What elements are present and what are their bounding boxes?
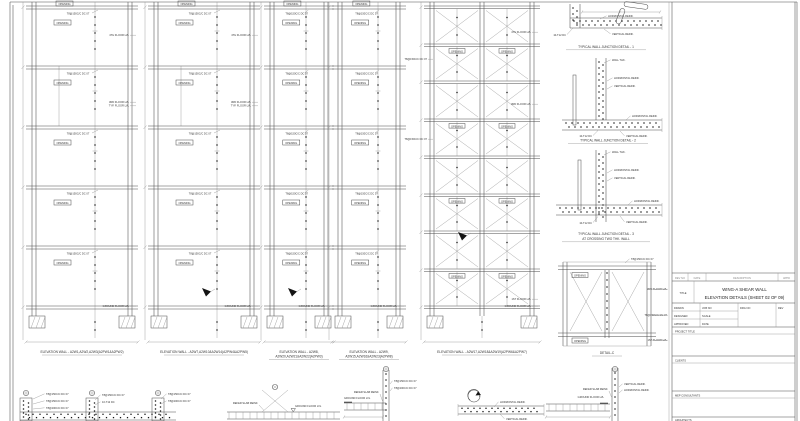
detail-caption: DETAIL-C xyxy=(600,351,615,355)
rebar-label: T8@150C/C DC 07 xyxy=(355,12,378,16)
rebar-label: T8@150C/C DC 07 xyxy=(404,57,427,61)
rebar-label: T8@150C/C DC 07 xyxy=(285,132,308,136)
elevation-caption: ELEVATION WALL - A2W7,A2W10&A2W14(A2PW4&… xyxy=(160,350,248,354)
elevation-3: OPENINGT8@150C/C DC 07OPENINGT8@150C/C D… xyxy=(260,1,336,360)
panel-tag: OPENING xyxy=(285,261,297,265)
scale-label: SCALE xyxy=(702,314,711,318)
annotation-label: T8@150C/C DC 07 xyxy=(394,379,417,383)
bottom-detail-2: REFER SLAB REINF.GROUND FLOOR LVL xyxy=(227,384,340,419)
annotation-label: HORIZONTAL REINF. xyxy=(500,400,526,404)
rebar-label: T8@150C/C DC 07 xyxy=(285,252,308,256)
annotation-label: HORIZONTAL REINF. xyxy=(608,14,634,18)
rebar-label: T8@150C/C DC 07 xyxy=(285,192,308,196)
rebar-label: T8@150C/C DC 07 xyxy=(189,192,212,196)
annotation-label: REFER SLAB REINF. xyxy=(354,390,379,394)
section-markers xyxy=(202,232,471,297)
elevation-4: OPENINGT8@150C/C DC 07OPENINGT8@150C/C D… xyxy=(328,1,408,360)
panel-tag: OPENING xyxy=(501,124,513,128)
bottom-detail-1: T8@150C/C DC 07T8@150C/C DC 07T8@200C/C … xyxy=(20,390,191,421)
annotation-label: VERTICAL REINF. xyxy=(614,84,636,88)
detail-caption: TYPICAL WALL JUNCTION DETAIL - 2 xyxy=(580,139,636,143)
floor-level-label: TYP. FLOOR LVL xyxy=(109,104,130,108)
panel-tag: OPENING xyxy=(285,21,297,25)
description-header: DESCRIPTION xyxy=(733,276,751,280)
rebar-label: T8@150C/C DC 07 xyxy=(67,192,90,196)
panel-tag: OPENING xyxy=(451,199,463,203)
panel-tag: OPENING xyxy=(57,21,69,25)
annotation-label: VERTICAL REINF. xyxy=(626,134,648,138)
rebar-label: T8@150C/C DC 07 xyxy=(285,72,308,76)
panel-tag: OPENING xyxy=(285,81,297,85)
annotation-label: REFER SLAB REINF. xyxy=(233,401,258,405)
panel-tag: OPENING xyxy=(179,261,191,265)
floor-level-label: 4TH FLOOR LVL xyxy=(109,33,129,37)
panel-tag: OPENING xyxy=(574,274,586,278)
rebar-label: T8@150C/C DC 07 xyxy=(404,137,427,141)
floor-level-label: GROUND FLOOR LVL xyxy=(299,304,326,308)
sheet-title: ELEVATION DETAILS (SHEET 02 OF 09) xyxy=(705,295,785,300)
annotation-label: T8@200C/C DC 07 xyxy=(394,386,417,390)
bottom-detail-3: T8@150C/C DC 07T8@200C/C DC 07REFER SLAB… xyxy=(343,366,417,421)
rebar-label: T8@150C/C DC 07 xyxy=(285,12,308,16)
panel-tag: OPENING xyxy=(354,21,366,25)
panel-tag: OPENING xyxy=(354,261,366,265)
title-block: REV NODATEDESCRIPTIONAPPDTITLEWING-A SHE… xyxy=(672,2,795,421)
floor-level-label: GROUND FLOOR LVL xyxy=(505,304,532,308)
panel-tag: OPENING xyxy=(59,2,71,6)
drawing-sheet: OPENINGT8@150C/C DC 07OPENINGT8@150C/C D… xyxy=(0,0,800,421)
annotation-label: VERTICAL REINF. xyxy=(612,32,634,36)
rebar-label: T8@150C/C DC 07 xyxy=(67,72,90,76)
annotation-label: HORIZONTAL REINF. xyxy=(614,76,640,80)
panel-tag: OPENING xyxy=(179,81,191,85)
panel-tag: OPENING xyxy=(181,2,193,6)
rebar-label: T8@150C/C DC 07 xyxy=(189,252,212,256)
elevation-caption: ELEVATION WALL - A2W9, xyxy=(350,350,389,354)
detail-caption: TYPICAL WALL JUNCTION DETAIL - 3 xyxy=(578,232,634,236)
detail-c: OPENINGOPENINGT8@150C/C DC 073RD FLOOR L… xyxy=(558,257,668,356)
annotation-label: VERTICAL REINF. xyxy=(614,176,636,180)
panel-tag: OPENING xyxy=(501,199,513,203)
panel-tag: OPENING xyxy=(57,141,69,145)
annotation-label: GROUND FLOOR LVL xyxy=(344,396,371,400)
rebar-label: T8@150C/C DC 07 xyxy=(355,252,378,256)
annotation-label: T8@150C/C DC 07 xyxy=(46,399,69,403)
detail-caption: AT CROSSING TWO THK. WALL xyxy=(582,237,630,241)
mep-label: MEP CONSULTANTS xyxy=(675,394,700,398)
floor-level-label: 4TH FLOOR LVL xyxy=(511,30,531,34)
title-label: TITLE xyxy=(679,291,686,295)
rebar-label: T8@150C/C DC 07 xyxy=(355,132,378,136)
panel-tag: OPENING xyxy=(285,141,297,145)
elevation-2: OPENINGT8@150C/C DC 07OPENINGT8@150C/C D… xyxy=(144,1,262,355)
panel-tag: OPENING xyxy=(354,201,366,205)
panel-tag: OPENING xyxy=(179,201,191,205)
annotation-label: T8@200C/C DC 07 xyxy=(46,406,69,410)
floor-level-label: 3RD FLOOR LVL xyxy=(231,100,252,104)
annotation-label: T8@150C/C DC 07 xyxy=(46,392,69,396)
annotation-label: 10-T12 DC xyxy=(579,134,592,138)
annotation-label: 10-T12 DC xyxy=(102,400,115,404)
annotation-label: HORIZONTAL REINF. xyxy=(614,168,640,172)
floor-level-label: TYP. FLOOR LVL xyxy=(231,104,252,108)
designed-label: DESIGNED xyxy=(674,314,688,318)
annotation-label: GROUND FLOOR LVL xyxy=(295,404,322,408)
rebar-label: T8@150C/C DC 07 xyxy=(189,72,212,76)
floor-level-label: 4TH FLOOR LVL xyxy=(231,33,251,37)
floor-level-label: 1ST FLOOR LVL xyxy=(511,297,531,301)
elevation-caption: ELEVATION WALL - A2W17,A2W18&A2W19(A2PW6… xyxy=(437,350,527,354)
approved-label: APPROVED xyxy=(674,322,689,326)
rebar-label: T8@150C/C DC 07 xyxy=(67,132,90,136)
annotation-label: T8@150C/C DC 07 xyxy=(168,392,191,396)
date-label: DATE xyxy=(702,322,709,326)
junction-detail-3: WALL THK.HORIZONTAL REINF.VERTICAL REINF… xyxy=(556,150,662,242)
annotation-label: HORIZONTAL REINF. xyxy=(624,388,650,392)
rebar-label: T8@150C/C DC 07 xyxy=(355,192,378,196)
detail-caption: TYPICAL WALL JUNCTION DETAIL - 1 xyxy=(578,45,634,49)
panel-tag: OPENING xyxy=(179,141,191,145)
panel-tag: OPENING xyxy=(179,21,191,25)
appd-header: APPD xyxy=(783,276,790,280)
annotation-label: WALL THK. xyxy=(612,150,626,154)
elevation-caption: ELEVATION WALL - A2W8, xyxy=(280,350,319,354)
rebar-label: T8@150C/C DC 07 xyxy=(189,12,212,16)
panel-tag: OPENING xyxy=(354,141,366,145)
annotation-label: T8@150C/C DC 07 xyxy=(631,257,654,261)
panel-tag: OPENING xyxy=(354,81,366,85)
annotation-label: HORIZONTAL REINF. xyxy=(632,114,658,118)
annotation-label: 10-T12 DC xyxy=(553,33,566,37)
panel-tag: OPENING xyxy=(286,2,298,6)
elevation-5: OPENINGOPENINGOPENINGOPENINGOPENINGOPENI… xyxy=(404,2,541,355)
job-no-label: JOB NO xyxy=(702,306,712,310)
panel-tag: OPENING xyxy=(451,274,463,278)
rebar-label: T8@150C/C DC 07 xyxy=(67,252,90,256)
panel-tag: OPENING xyxy=(355,2,367,6)
annotation-label: VERTICAL REINF. xyxy=(624,382,646,386)
annotation-label: GROUND FLOOR LVL xyxy=(578,395,605,399)
panel-tag: OPENING xyxy=(451,124,463,128)
annotation-label: REFER SLAB REINF. xyxy=(583,387,608,391)
junction-detail-1: HORIZONTAL REINF.VERTICAL REINF.10-T12 D… xyxy=(553,1,662,49)
drawing-canvas: OPENINGT8@150C/C DC 07OPENINGT8@150C/C D… xyxy=(0,0,800,421)
rev-no-header: REV NO xyxy=(675,276,685,280)
rebar-label: T8@150C/C DC 07 xyxy=(355,72,378,76)
panel-tag: OPENING xyxy=(501,49,513,53)
elevation-1: OPENINGT8@150C/C DC 07OPENINGT8@150C/C D… xyxy=(22,1,140,355)
drawn-label: DRAWN xyxy=(674,306,684,310)
bottom-detail-4: HORIZONTAL REINF.VERTICAL REINF. xyxy=(458,389,544,421)
floor-level-label: 3RD FLOOR LVL xyxy=(109,100,130,104)
rev-label: REV xyxy=(778,306,784,310)
panel-tag: OPENING xyxy=(57,81,69,85)
junction-detail-2: WALL THK.HORIZONTAL REINF.VERTICAL REINF… xyxy=(562,58,662,143)
floor-level-label: 3RD FLOOR LVL xyxy=(511,102,532,106)
drg-no-label: DRG NO xyxy=(740,306,750,310)
annotation-label: 10-T12 DC xyxy=(579,221,592,225)
annotation-label: VERTICAL REINF. xyxy=(626,220,648,224)
panel-tag: OPENING xyxy=(285,201,297,205)
annotation-label: WALL THK. xyxy=(612,58,626,62)
annotation-label: HORIZONTAL REINF. xyxy=(634,199,660,203)
panel-tag: OPENING xyxy=(451,49,463,53)
rebar-label: T8@150C/C DC 07 xyxy=(67,12,90,16)
project-title-label: PROJECT TITLE xyxy=(675,330,695,334)
sheet-title: WING-A SHEAR WALL xyxy=(722,287,767,292)
floor-level-label: GROUND FLOOR LVL xyxy=(225,304,252,308)
annotation-label: VERTICAL REINF. xyxy=(506,417,528,421)
rebar-label: T8@150C/C DC 07 xyxy=(189,132,212,136)
bottom-detail-5: VERTICAL REINF.HORIZONTAL REINF.REFER SL… xyxy=(545,366,650,421)
annotation-label: T8@150C/C DC 07 xyxy=(102,393,125,397)
panel-tag: OPENING xyxy=(57,201,69,205)
floor-level-label: GROUND FLOOR LVL xyxy=(371,304,398,308)
panel-tag: OPENING xyxy=(574,339,586,343)
panel-tag: OPENING xyxy=(57,261,69,265)
panel-tag: OPENING xyxy=(501,274,513,278)
annotation-label: T8@200C/C DC 07 xyxy=(168,399,191,403)
clients-label: CLIENTS xyxy=(675,359,686,363)
floor-level-label: GROUND FLOOR LVL xyxy=(103,304,130,308)
elevation-caption: A2W20,A2W21&A2W22(A2PW3) xyxy=(275,355,322,359)
elevation-caption: ELEVATION WALL - A2W1,A2W2,A2W3(A2PW1&A2… xyxy=(40,350,123,354)
date-header: DATE xyxy=(694,276,701,280)
elevation-caption: A2W15,A2W16&A2W23(A2PW8) xyxy=(345,355,392,359)
